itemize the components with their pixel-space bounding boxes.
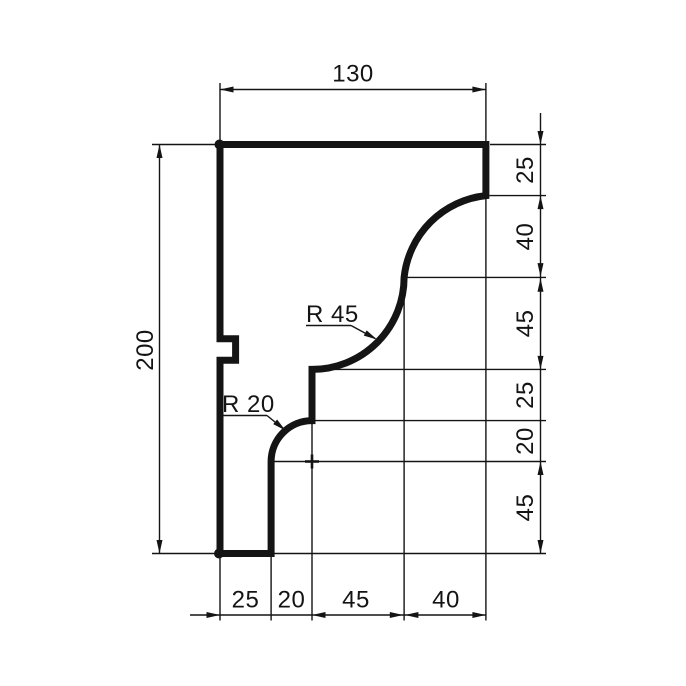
technical-drawing: 130 200 25 40 45 25 20 45 25 20 45 40 R … (0, 0, 686, 686)
arrowhead (207, 612, 221, 618)
dim-left-200: 200 (132, 329, 159, 371)
radius-label-r45: R 45 (306, 301, 359, 328)
arrowhead (472, 87, 486, 93)
drawing-canvas: 130 200 25 40 45 25 20 45 25 20 45 40 R … (0, 0, 686, 686)
arrowhead (220, 87, 234, 93)
arrowhead (538, 356, 544, 370)
dim-right-40: 40 (512, 223, 539, 251)
arrowhead (405, 612, 419, 618)
corner-node-top-left (215, 140, 225, 150)
arrowhead (538, 278, 544, 292)
arrowhead (538, 540, 544, 554)
arrowhead (312, 612, 326, 618)
dim-top-130: 130 (332, 61, 374, 88)
dim-bottom-40: 40 (432, 587, 460, 614)
dim-right-25a: 25 (512, 156, 539, 184)
dim-bottom-45: 45 (342, 587, 370, 614)
dim-bottom-20: 20 (278, 587, 306, 614)
profile-outline (220, 145, 486, 554)
arrowhead (157, 145, 163, 159)
arrowhead (538, 462, 544, 476)
dim-bottom-25: 25 (232, 587, 260, 614)
arrowhead (157, 540, 163, 554)
arrowhead (538, 196, 544, 210)
corner-node-bottom-left (214, 549, 224, 559)
arrowhead (472, 612, 486, 618)
dim-right-45b: 45 (512, 494, 539, 522)
dim-right-25b: 25 (512, 381, 539, 409)
dim-right-45a: 45 (512, 310, 539, 338)
arrowhead (390, 612, 404, 618)
center-mark (305, 455, 319, 469)
radius-label-r20: R 20 (222, 391, 275, 418)
arrowhead (538, 131, 544, 145)
arrowhead (538, 263, 544, 277)
profile (214, 140, 486, 559)
dim-right-20: 20 (512, 427, 539, 455)
